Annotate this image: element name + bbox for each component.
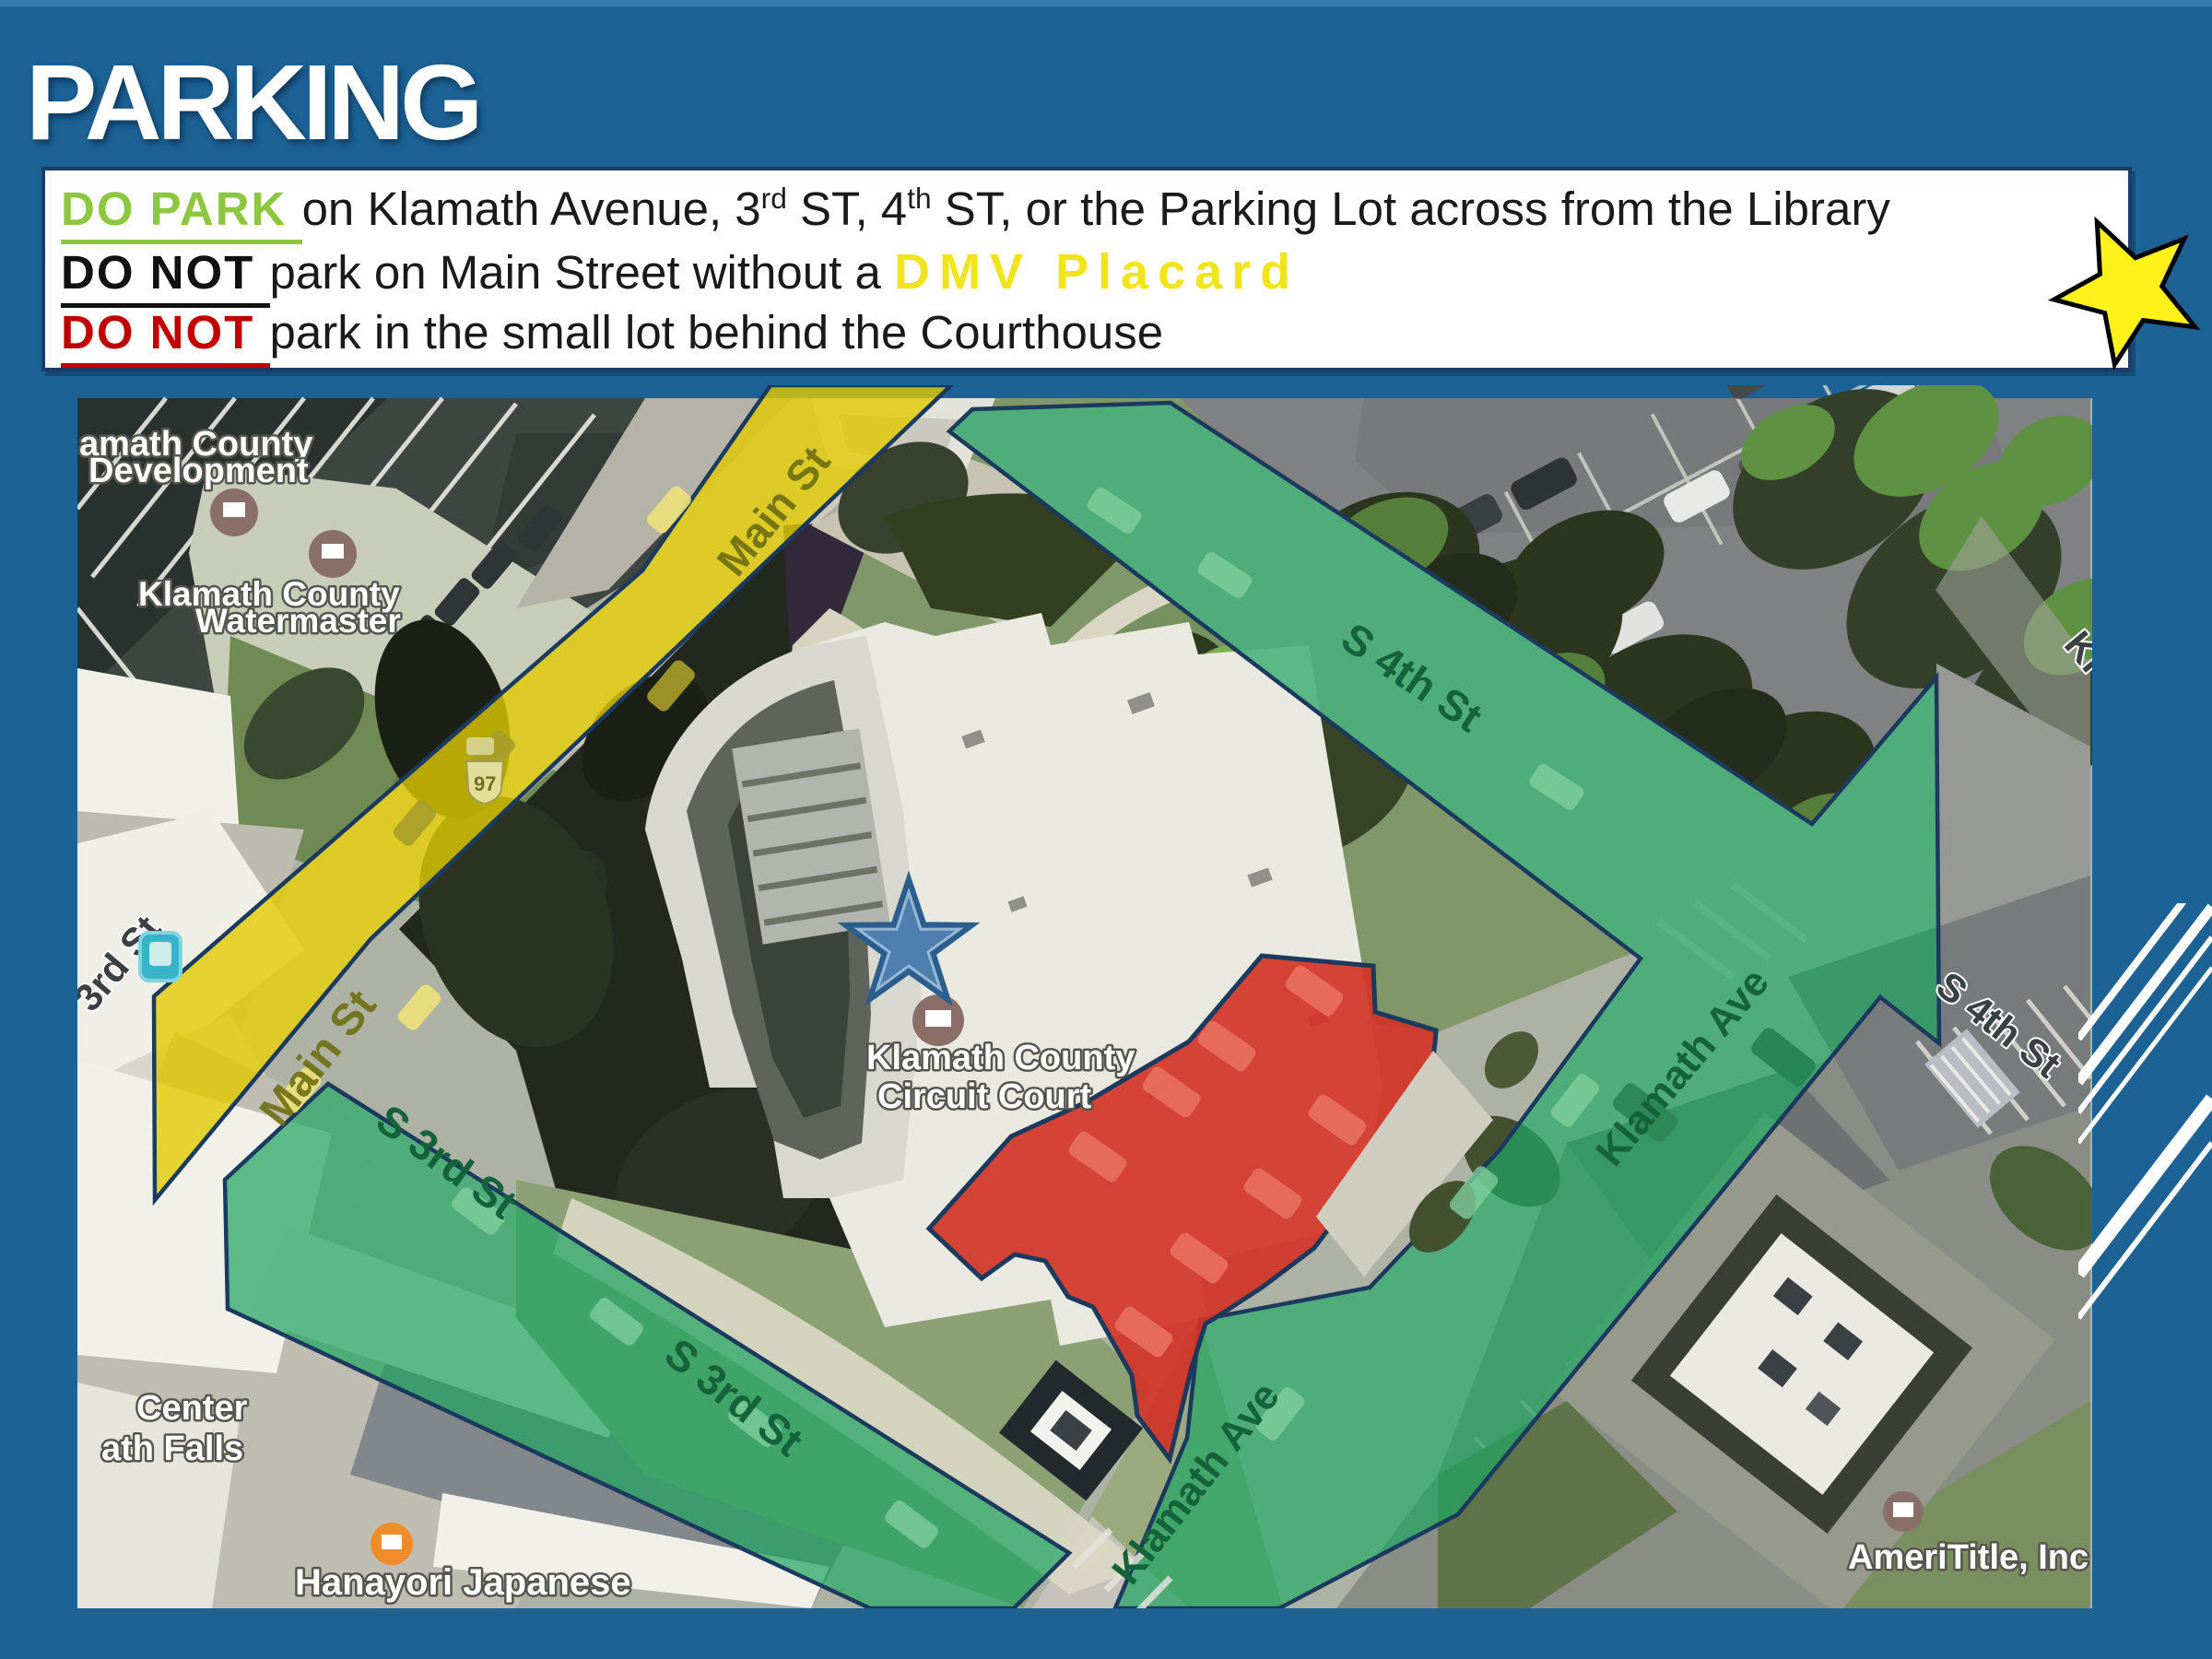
svg-text:ath Falls: ath Falls [101, 1430, 243, 1468]
svg-text:97: 97 [474, 772, 496, 795]
svg-text:Watermaster: Watermaster [195, 602, 401, 640]
svg-text:Circuit Court: Circuit Court [877, 1077, 1092, 1116]
svg-text:AmeriTitle, Inc: AmeriTitle, Inc [1848, 1538, 2088, 1577]
svg-text:Hanayori Japanese: Hanayori Japanese [295, 1562, 631, 1603]
svg-text:Development: Development [88, 452, 309, 490]
svg-text:Klamath County: Klamath County [866, 1039, 1135, 1077]
svg-text:Center: Center [136, 1389, 248, 1428]
